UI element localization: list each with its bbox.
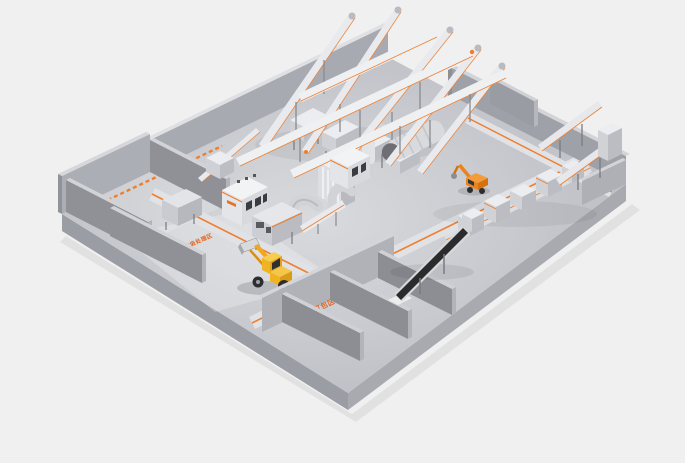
plant-3d-render: 建筑装修垃圾处理区 堆放区	[0, 0, 685, 463]
handler-grab	[451, 173, 457, 179]
right-tall-machine	[598, 123, 622, 161]
render-canvas: 建筑装修垃圾处理区 堆放区	[0, 0, 685, 463]
